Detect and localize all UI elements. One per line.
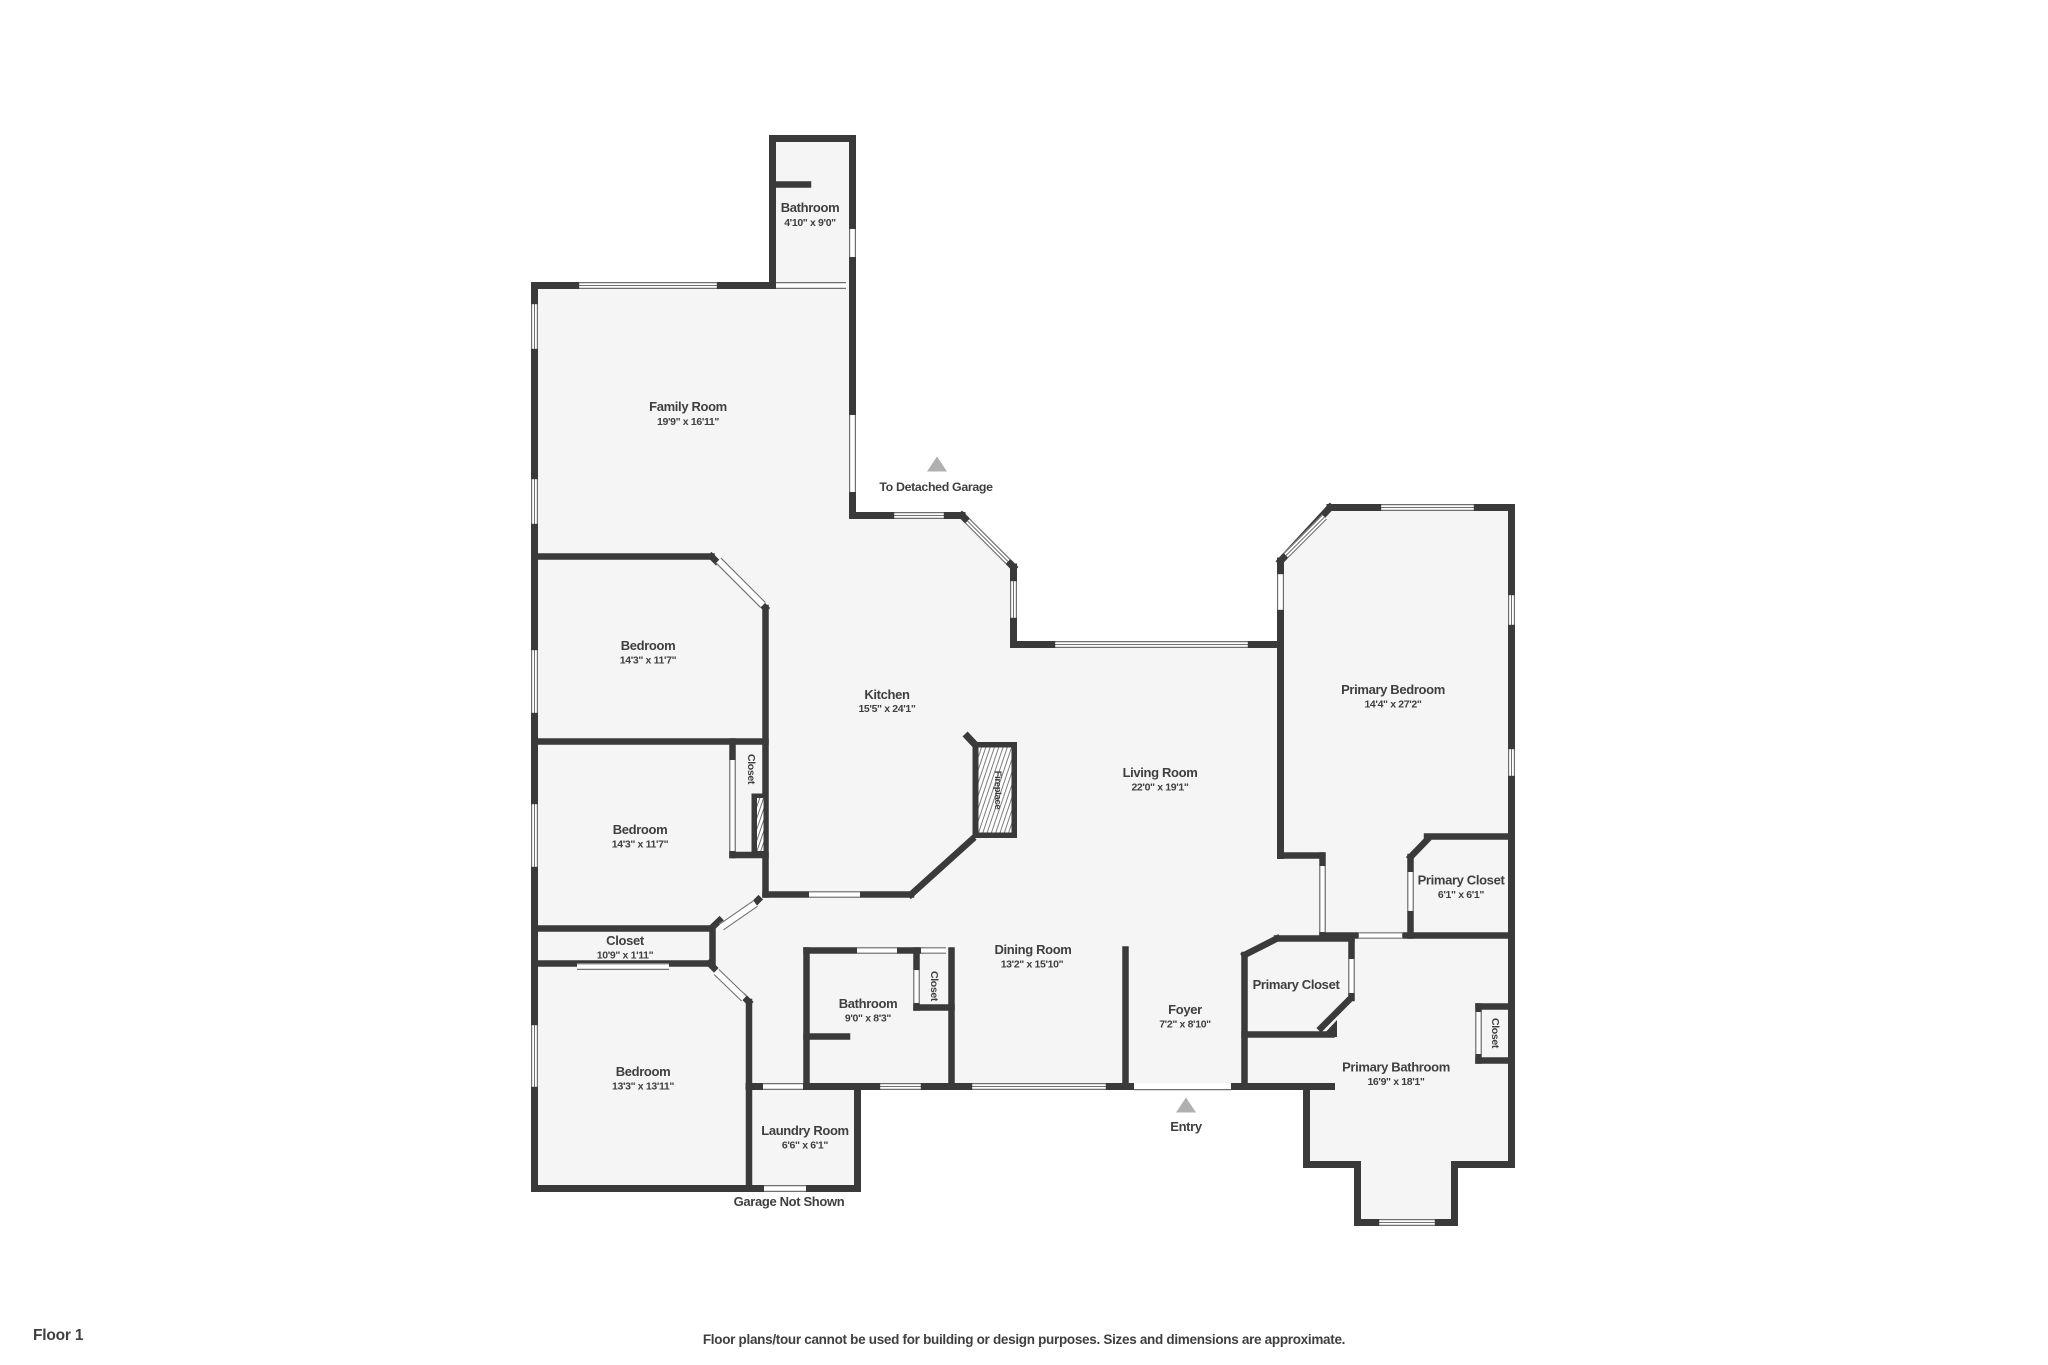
svg-text:Primary Bedroom: Primary Bedroom xyxy=(1341,682,1445,697)
svg-text:Closet: Closet xyxy=(1489,1018,1501,1049)
svg-text:Bedroom: Bedroom xyxy=(616,1064,671,1079)
svg-text:Closet: Closet xyxy=(606,933,645,948)
svg-text:Foyer: Foyer xyxy=(1168,1002,1202,1017)
svg-text:To Detached Garage: To Detached Garage xyxy=(879,480,993,494)
svg-text:Fireplace: Fireplace xyxy=(992,771,1003,810)
svg-text:14'3" x 11'7": 14'3" x 11'7" xyxy=(620,655,677,667)
svg-text:9'0" x 8'3": 9'0" x 8'3" xyxy=(845,1013,892,1025)
svg-text:Garage Not Shown: Garage Not Shown xyxy=(734,1194,845,1209)
svg-text:Floor plans/tour cannot be use: Floor plans/tour cannot be used for buil… xyxy=(703,1332,1345,1347)
svg-text:Bathroom: Bathroom xyxy=(839,996,898,1011)
svg-text:14'3" x 11'7": 14'3" x 11'7" xyxy=(612,839,669,851)
svg-text:14'4" x 27'2": 14'4" x 27'2" xyxy=(1364,699,1421,711)
svg-text:Closet: Closet xyxy=(928,971,940,1002)
svg-text:Primary Bathroom: Primary Bathroom xyxy=(1342,1060,1450,1075)
svg-text:7'2" x 8'10": 7'2" x 8'10" xyxy=(1159,1019,1211,1031)
svg-text:Kitchen: Kitchen xyxy=(864,687,910,702)
svg-text:Living Room: Living Room xyxy=(1123,765,1198,780)
svg-text:13'3" x 13'11": 13'3" x 13'11" xyxy=(612,1081,674,1093)
svg-text:Entry: Entry xyxy=(1170,1119,1203,1134)
svg-text:Closet: Closet xyxy=(745,754,757,785)
svg-text:15'5" x 24'1": 15'5" x 24'1" xyxy=(858,703,915,715)
svg-text:4'10" x 9'0": 4'10" x 9'0" xyxy=(784,217,836,229)
svg-text:Floor 1: Floor 1 xyxy=(33,1327,84,1344)
svg-text:Family Room: Family Room xyxy=(649,399,727,414)
svg-text:Bedroom: Bedroom xyxy=(613,822,668,837)
svg-text:16'9" x 18'1": 16'9" x 18'1" xyxy=(1367,1076,1424,1088)
svg-text:6'1" x 6'1": 6'1" x 6'1" xyxy=(1438,889,1485,901)
svg-text:Laundry Room: Laundry Room xyxy=(761,1123,849,1138)
svg-text:Dining Room: Dining Room xyxy=(994,942,1071,957)
svg-text:Primary Closet: Primary Closet xyxy=(1418,873,1506,888)
svg-text:Bedroom: Bedroom xyxy=(621,638,676,653)
svg-text:Primary Closet: Primary Closet xyxy=(1253,977,1341,992)
svg-text:6'6" x 6'1": 6'6" x 6'1" xyxy=(782,1140,829,1152)
svg-text:19'9" x 16'11": 19'9" x 16'11" xyxy=(657,416,719,428)
svg-text:22'0" x 19'1": 22'0" x 19'1" xyxy=(1131,782,1188,794)
svg-text:13'2" x 15'10": 13'2" x 15'10" xyxy=(1001,959,1064,971)
svg-text:10'9" x 1'11": 10'9" x 1'11" xyxy=(597,950,654,962)
svg-text:Bathroom: Bathroom xyxy=(781,200,840,215)
